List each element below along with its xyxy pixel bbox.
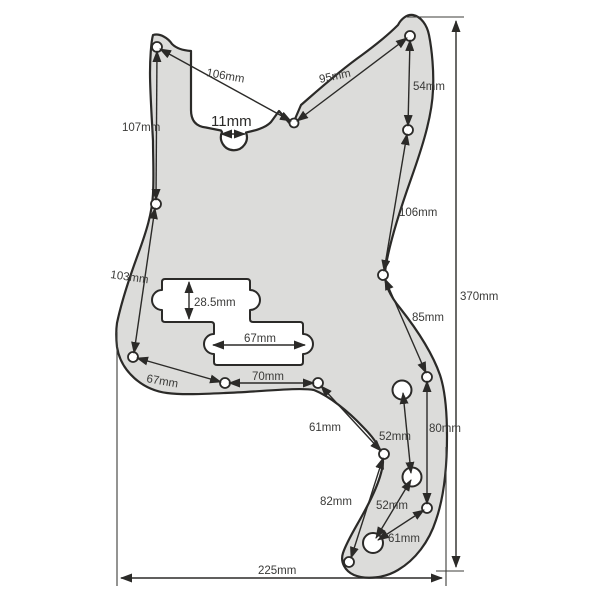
dim-label-370: 370mm bbox=[460, 291, 498, 303]
screw-hole bbox=[422, 503, 432, 513]
dim-label-61-bottom: 61mm bbox=[388, 533, 420, 545]
dim-label-107: 107mm bbox=[122, 122, 160, 134]
screw-hole bbox=[151, 199, 161, 209]
screw-hole bbox=[290, 119, 299, 128]
dim-label-28-5: 28.5mm bbox=[194, 297, 236, 309]
screw-hole bbox=[405, 31, 415, 41]
screw-hole bbox=[344, 557, 354, 567]
dim-label-82: 82mm bbox=[320, 496, 352, 508]
screw-hole bbox=[128, 352, 138, 362]
screw-hole bbox=[378, 270, 388, 280]
dim-label-225: 225mm bbox=[258, 565, 296, 577]
dim-label-85: 85mm bbox=[412, 312, 444, 324]
dim-label-106-right: 106mm bbox=[399, 207, 437, 219]
diagram-canvas: 106mm 95mm 54mm 107mm 11mm 103mm 106mm 3… bbox=[0, 0, 600, 600]
dim-label-54: 54mm bbox=[413, 81, 445, 93]
dim-label-11: 11mm bbox=[211, 113, 252, 130]
dim-label-52-top: 52mm bbox=[379, 431, 411, 443]
dim-label-80: 80mm bbox=[429, 423, 461, 435]
pickguard-dimension-diagram: 106mm 95mm 54mm 107mm 11mm 103mm 106mm 3… bbox=[0, 0, 600, 600]
screw-hole bbox=[220, 378, 230, 388]
screw-hole bbox=[422, 372, 432, 382]
screw-hole bbox=[403, 125, 413, 135]
screw-hole bbox=[152, 42, 162, 52]
dim-label-52-bottom: 52mm bbox=[376, 500, 408, 512]
dim-label-70: 70mm bbox=[252, 371, 284, 383]
pot-hole bbox=[393, 381, 412, 400]
dim-label-61-left: 61mm bbox=[309, 422, 341, 434]
dim-label-106-top: 106mm bbox=[205, 67, 245, 85]
pot-hole bbox=[363, 533, 383, 553]
pot-hole bbox=[403, 468, 422, 487]
dim-label-67-pickup: 67mm bbox=[244, 333, 276, 345]
